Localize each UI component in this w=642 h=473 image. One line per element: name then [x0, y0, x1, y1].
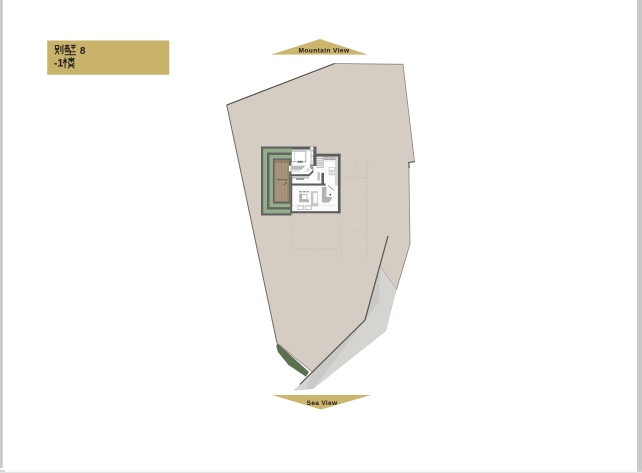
svg-text:Sea View: Sea View [307, 400, 338, 407]
svg-text:-1: -1 [54, 58, 64, 70]
svg-text:8: 8 [80, 46, 86, 57]
svg-text:Mountain View: Mountain View [299, 47, 350, 54]
